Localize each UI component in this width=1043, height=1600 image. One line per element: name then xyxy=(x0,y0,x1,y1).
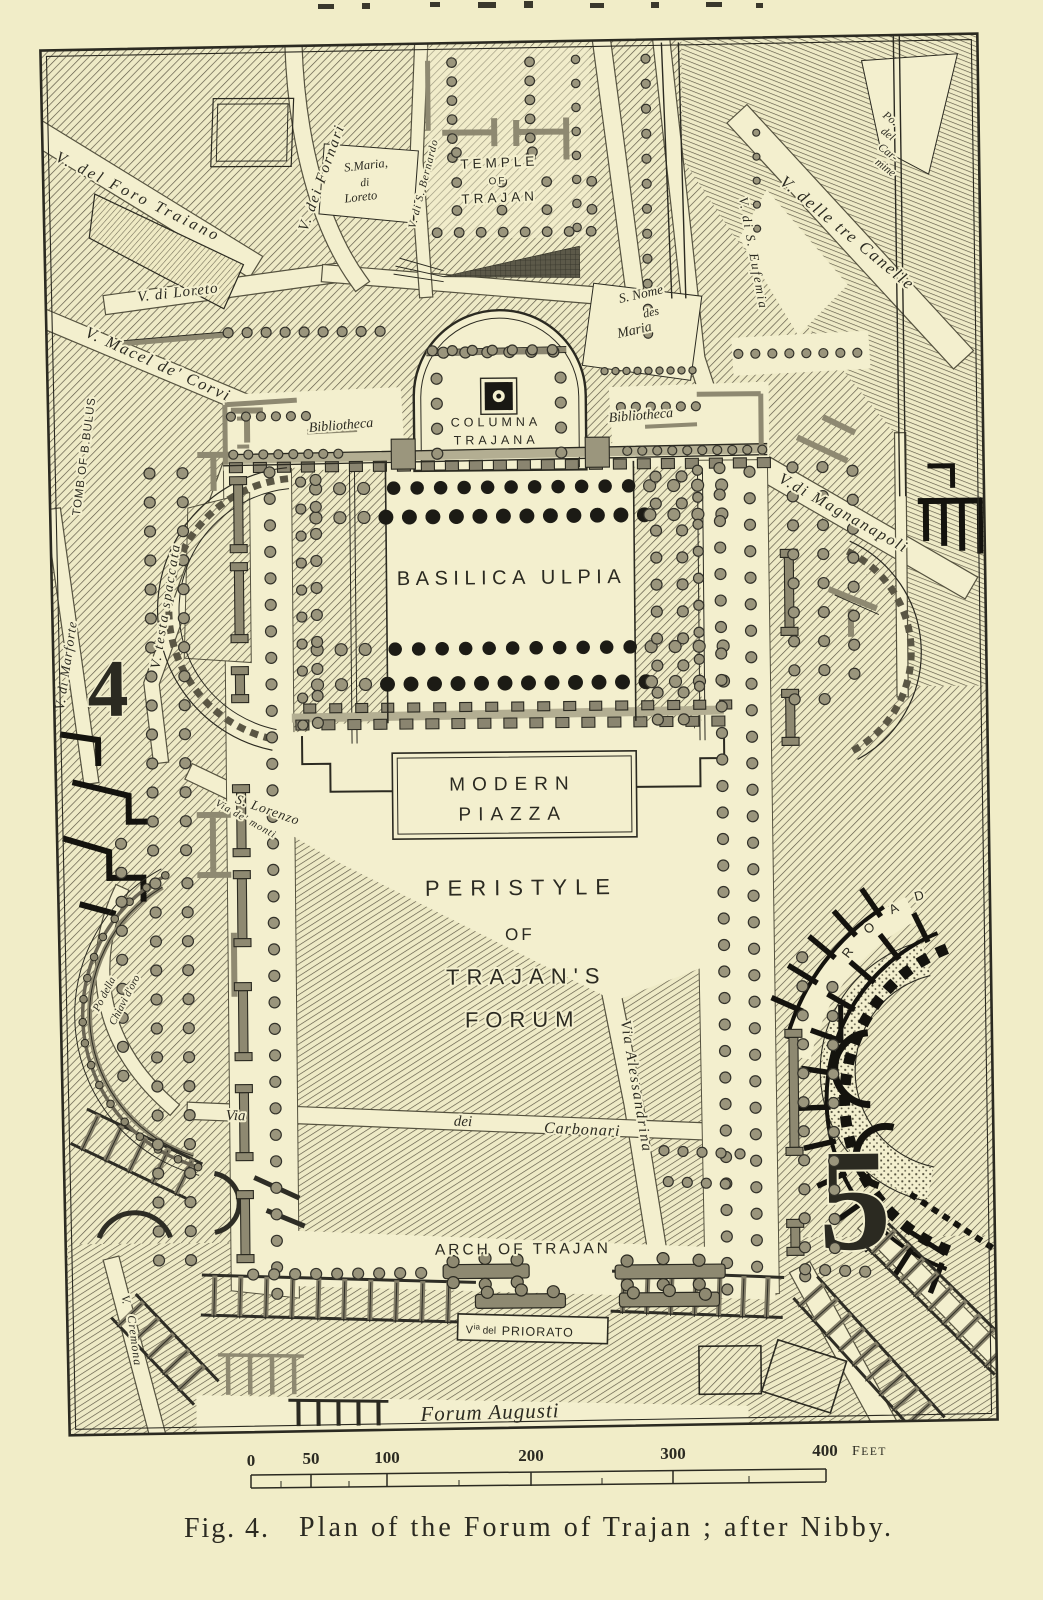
svg-text:COLUMNA: COLUMNA xyxy=(451,415,542,430)
svg-text:ia: ia xyxy=(474,1322,481,1331)
svg-text:OF: OF xyxy=(505,925,535,944)
svg-text:4: 4 xyxy=(87,643,129,734)
svg-text:PERISTYLE: PERISTYLE xyxy=(425,874,618,901)
svg-text:5: 5 xyxy=(818,1120,892,1281)
svg-text:dei: dei xyxy=(454,1114,473,1130)
svg-text:Via: Via xyxy=(226,1108,246,1124)
svg-text:TRAJANA: TRAJANA xyxy=(454,433,539,448)
svg-text:400: 400 xyxy=(812,1441,838,1460)
svg-text:ARCH OF TRAJAN: ARCH OF TRAJAN xyxy=(435,1240,611,1259)
svg-text:MODERN: MODERN xyxy=(449,773,576,795)
svg-text:del: del xyxy=(483,1326,497,1337)
svg-text:OF: OF xyxy=(488,176,506,188)
svg-text:300: 300 xyxy=(660,1444,686,1463)
svg-text:200: 200 xyxy=(518,1446,544,1465)
svg-text:FORUM: FORUM xyxy=(465,1006,581,1032)
svg-text:PRIORATO: PRIORATO xyxy=(501,1324,573,1340)
svg-text:TRAJAN'S: TRAJAN'S xyxy=(446,963,607,990)
svg-text:di: di xyxy=(360,177,370,190)
svg-text:Carbonari: Carbonari xyxy=(544,1120,621,1140)
svg-text:PIAZZA: PIAZZA xyxy=(458,804,567,826)
svg-text:V: V xyxy=(466,1324,474,1336)
svg-text:100: 100 xyxy=(374,1448,400,1467)
svg-text:BASILICA ULPIA: BASILICA ULPIA xyxy=(397,566,626,590)
svg-text:50: 50 xyxy=(303,1449,320,1468)
svg-text:Plan of the Forum of Trajan ;: Plan of the Forum of Trajan ; after Nibb… xyxy=(299,1512,891,1543)
svg-text:0: 0 xyxy=(247,1451,256,1470)
svg-text:FEET: FEET xyxy=(852,1444,887,1459)
